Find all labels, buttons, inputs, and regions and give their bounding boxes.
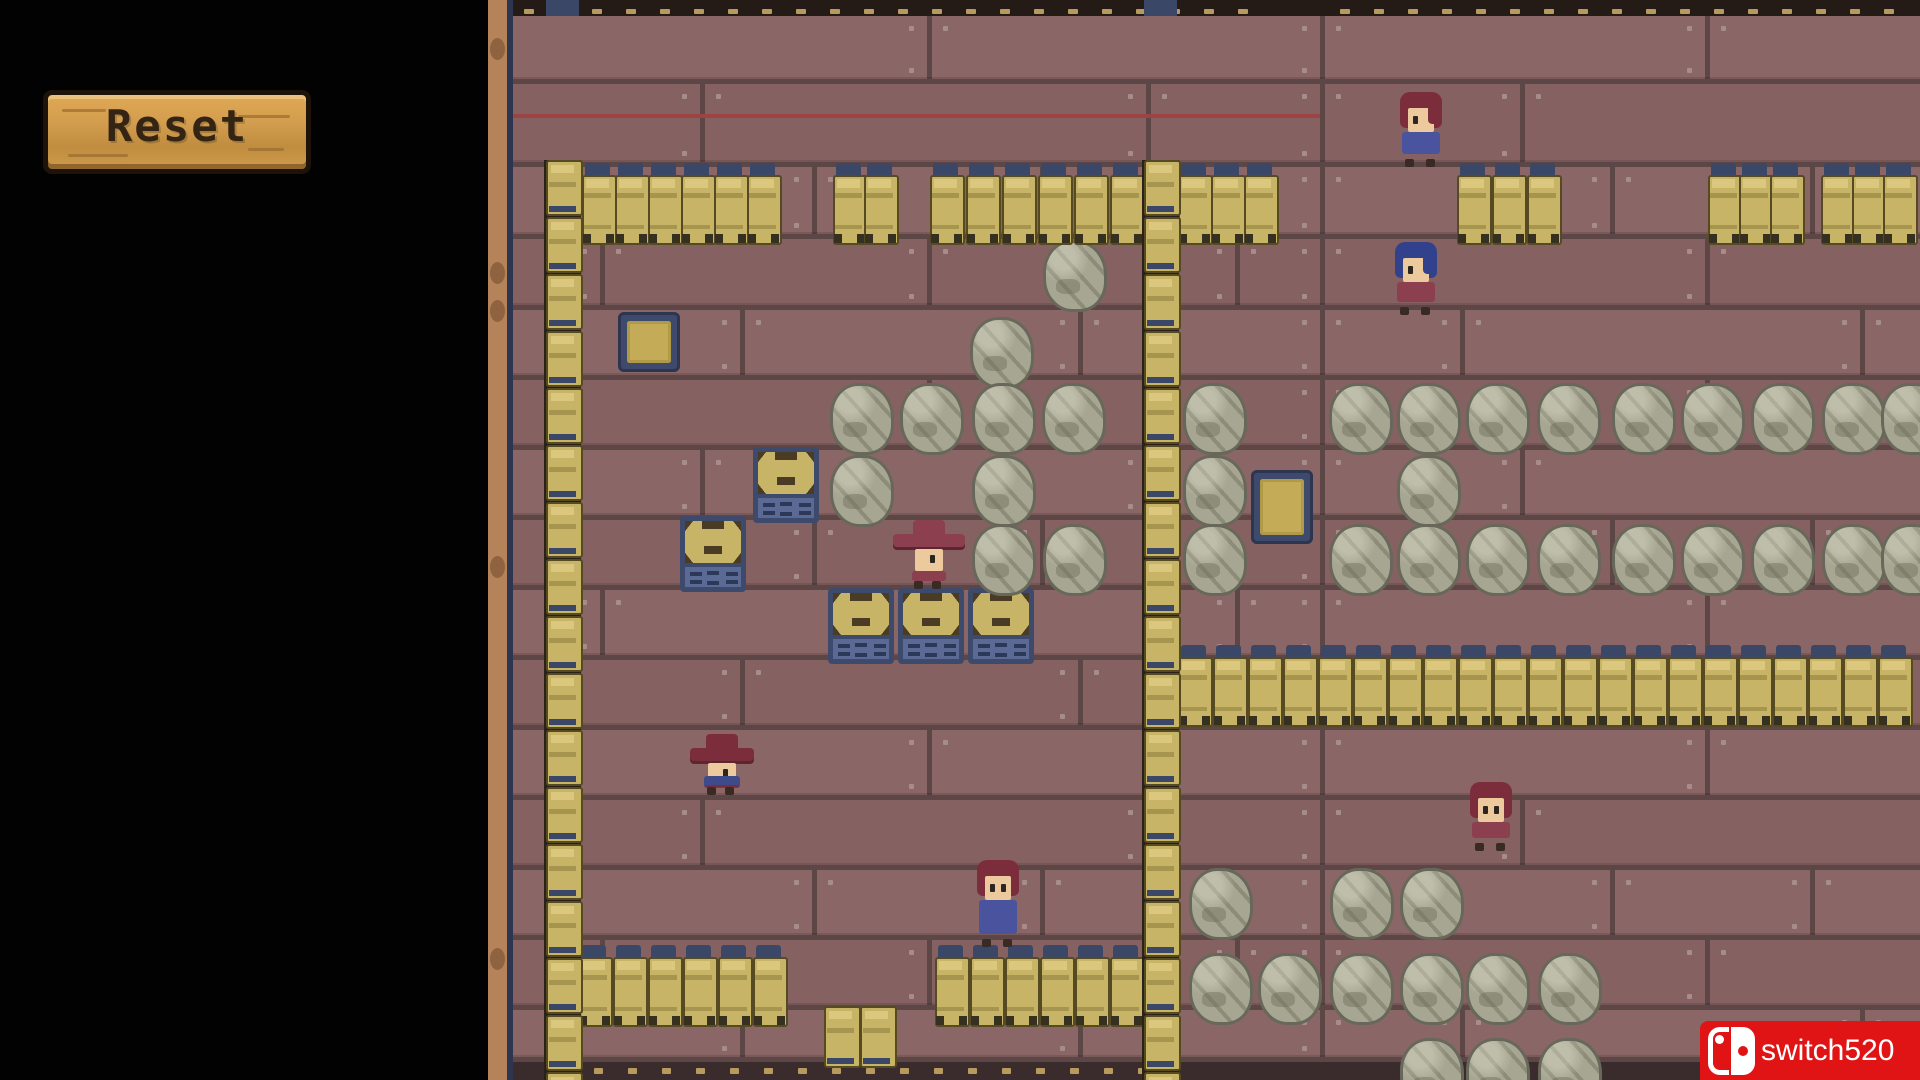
nail bbox=[1060, 1020, 1065, 1025]
nail bbox=[909, 994, 914, 999]
plank-seam bbox=[812, 870, 817, 940]
nail bbox=[1842, 364, 1847, 369]
nail bbox=[1687, 390, 1692, 395]
top-strip-dash bbox=[1578, 9, 1588, 14]
top-strip-dash bbox=[1374, 9, 1384, 14]
nail bbox=[1792, 924, 1797, 929]
nail bbox=[1476, 670, 1481, 675]
left-wall-beam bbox=[488, 0, 507, 1080]
nail bbox=[1217, 294, 1222, 299]
nail bbox=[1687, 26, 1692, 31]
nail bbox=[1336, 1020, 1341, 1025]
nail bbox=[943, 26, 948, 31]
nail bbox=[909, 68, 914, 73]
plank-seam bbox=[1078, 1010, 1083, 1062]
nail bbox=[1302, 644, 1307, 649]
top-strip-dash bbox=[524, 9, 534, 14]
plank-seam bbox=[740, 310, 745, 380]
nail bbox=[1162, 460, 1167, 465]
nail bbox=[1302, 460, 1307, 465]
plank-seam bbox=[1705, 239, 1710, 310]
nail bbox=[1302, 223, 1307, 228]
reset-button[interactable]: Reset bbox=[43, 90, 311, 174]
nail bbox=[1162, 810, 1167, 815]
nail bbox=[682, 151, 687, 156]
nail bbox=[682, 94, 687, 99]
nail bbox=[1442, 714, 1447, 719]
nail bbox=[582, 294, 587, 299]
plank-seam bbox=[1040, 167, 1045, 239]
plank-seam bbox=[1146, 450, 1151, 520]
plank-seam bbox=[927, 940, 932, 1010]
plank bbox=[513, 800, 1920, 870]
bottom-strip-dash bbox=[594, 1068, 603, 1074]
nail bbox=[756, 1020, 761, 1025]
top-strip-dash bbox=[1748, 9, 1758, 14]
nail bbox=[582, 994, 587, 999]
nail bbox=[1094, 320, 1099, 325]
nail bbox=[722, 714, 727, 719]
bottom-strip-dash bbox=[1070, 1068, 1079, 1074]
nail bbox=[828, 880, 833, 885]
plank-seam bbox=[812, 520, 817, 590]
bottom-strip-dash bbox=[628, 1068, 637, 1074]
nail bbox=[1721, 950, 1726, 955]
nail bbox=[1792, 177, 1797, 182]
bottom-strip-dash bbox=[696, 1068, 705, 1074]
plank bbox=[513, 167, 1920, 239]
nail bbox=[1302, 600, 1307, 605]
plank-seam bbox=[1520, 800, 1525, 870]
nail bbox=[1336, 249, 1341, 254]
top-strip-dash bbox=[1612, 9, 1622, 14]
nail bbox=[1251, 600, 1256, 605]
nail bbox=[1022, 530, 1027, 535]
nail bbox=[1336, 530, 1341, 535]
nail bbox=[1217, 950, 1222, 955]
nail bbox=[943, 600, 948, 605]
nail bbox=[1842, 670, 1847, 675]
top-strip-dash bbox=[660, 9, 670, 14]
top-strip-dash bbox=[1850, 9, 1860, 14]
plank-seam bbox=[927, 239, 932, 310]
nail bbox=[1302, 94, 1307, 99]
plank-seam bbox=[1320, 800, 1325, 870]
nail bbox=[582, 600, 587, 605]
top-strip-dash bbox=[1782, 9, 1792, 14]
nail bbox=[1128, 460, 1133, 465]
nail bbox=[1217, 994, 1222, 999]
nail bbox=[1022, 223, 1027, 228]
nail bbox=[1302, 1046, 1307, 1051]
nail bbox=[1792, 574, 1797, 579]
nail bbox=[1302, 994, 1307, 999]
plank-seam bbox=[1610, 167, 1615, 239]
nail bbox=[1336, 26, 1341, 31]
plank-seam bbox=[1705, 590, 1710, 660]
plank-seam bbox=[927, 380, 932, 450]
nail bbox=[1442, 1046, 1447, 1051]
nail bbox=[1302, 670, 1307, 675]
nail bbox=[909, 26, 914, 31]
plank-seam bbox=[1320, 380, 1325, 450]
switch-logo-icon bbox=[1708, 1027, 1729, 1075]
nail bbox=[1592, 924, 1597, 929]
nail bbox=[1826, 880, 1831, 885]
bottom-strip-dash bbox=[900, 1068, 909, 1074]
plank bbox=[513, 870, 1920, 940]
nail bbox=[1302, 810, 1307, 815]
plank-seam bbox=[1320, 310, 1325, 380]
plank-seam bbox=[927, 16, 932, 84]
nail bbox=[943, 740, 948, 745]
plank-seam bbox=[1460, 1010, 1465, 1062]
bottom-strip-dash bbox=[1104, 1068, 1113, 1074]
nail bbox=[1060, 320, 1065, 325]
top-strip-dash bbox=[1544, 9, 1554, 14]
plank-seam bbox=[1320, 84, 1325, 167]
switch-logo-icon bbox=[1731, 1027, 1755, 1075]
nail bbox=[1217, 600, 1222, 605]
plank-seam bbox=[1078, 310, 1083, 380]
nail bbox=[1592, 880, 1597, 885]
nail bbox=[616, 950, 621, 955]
nail bbox=[1302, 151, 1307, 156]
top-strip-dash bbox=[694, 9, 704, 14]
nail bbox=[1687, 68, 1692, 73]
nail bbox=[1336, 810, 1341, 815]
bottom-strip-dash bbox=[1138, 1068, 1147, 1074]
nail bbox=[582, 249, 587, 254]
nail bbox=[682, 460, 687, 465]
nail bbox=[1128, 810, 1133, 815]
plank-seam bbox=[1520, 450, 1525, 520]
nail bbox=[1721, 600, 1726, 605]
plank-seam bbox=[1860, 660, 1865, 730]
nail bbox=[1626, 880, 1631, 885]
nail bbox=[1536, 460, 1541, 465]
nail bbox=[828, 530, 833, 535]
nail bbox=[1687, 950, 1692, 955]
nail bbox=[1826, 177, 1831, 182]
nail bbox=[1687, 249, 1692, 254]
nail bbox=[1476, 1020, 1481, 1025]
plank-seam bbox=[1040, 870, 1045, 940]
game-area[interactable] bbox=[513, 0, 1920, 1080]
nail bbox=[794, 530, 799, 535]
nail bbox=[1687, 740, 1692, 745]
nail bbox=[1336, 94, 1341, 99]
nail bbox=[1626, 530, 1631, 535]
nail bbox=[1060, 670, 1065, 675]
nail bbox=[1302, 924, 1307, 929]
plank-seam bbox=[740, 1010, 745, 1062]
plank-seam bbox=[1320, 870, 1325, 940]
nail bbox=[1592, 177, 1597, 182]
nail bbox=[909, 249, 914, 254]
plank-seam bbox=[1320, 660, 1325, 730]
left-panel: Reset bbox=[0, 0, 488, 1080]
plank bbox=[513, 84, 1920, 167]
top-wall-strip bbox=[513, 0, 1920, 16]
nail bbox=[1721, 26, 1726, 31]
plank-seam bbox=[1320, 590, 1325, 660]
nail bbox=[1502, 94, 1507, 99]
nail bbox=[1060, 364, 1065, 369]
nail bbox=[1336, 320, 1341, 325]
top-strip-dash bbox=[1816, 9, 1826, 14]
nail bbox=[1217, 249, 1222, 254]
nail bbox=[1687, 294, 1692, 299]
plank-seam bbox=[740, 660, 745, 730]
plank-seam bbox=[700, 800, 705, 870]
plank-seam bbox=[1040, 520, 1045, 590]
nail bbox=[1476, 320, 1481, 325]
bottom-strip-dash bbox=[968, 1068, 977, 1074]
nail bbox=[1022, 574, 1027, 579]
nail bbox=[716, 460, 721, 465]
nail bbox=[722, 1046, 727, 1051]
plank-seam bbox=[1810, 167, 1815, 239]
nail bbox=[1792, 880, 1797, 885]
bottom-strip-dash bbox=[764, 1068, 773, 1074]
nail bbox=[1302, 740, 1307, 745]
nail bbox=[1336, 740, 1341, 745]
nail bbox=[1128, 504, 1133, 509]
nail bbox=[1022, 177, 1027, 182]
top-strip-dash bbox=[1510, 9, 1520, 14]
nail bbox=[1302, 530, 1307, 535]
plank-seam bbox=[1460, 660, 1465, 730]
nail bbox=[1302, 1020, 1307, 1025]
top-strip-dash bbox=[898, 9, 908, 14]
nail bbox=[909, 390, 914, 395]
nail bbox=[1442, 320, 1447, 325]
plank-seam bbox=[600, 940, 605, 1010]
plank-seam bbox=[1320, 730, 1325, 800]
nail bbox=[1302, 390, 1307, 395]
nail bbox=[1022, 880, 1027, 885]
plank bbox=[513, 520, 1920, 590]
nail bbox=[794, 880, 799, 885]
nail bbox=[1056, 177, 1061, 182]
nail bbox=[1876, 320, 1881, 325]
nail bbox=[722, 1020, 727, 1025]
column-cap bbox=[1144, 0, 1177, 16]
plank-seam bbox=[1320, 450, 1325, 520]
nail bbox=[1502, 460, 1507, 465]
nail bbox=[1687, 784, 1692, 789]
bottom-strip-dash bbox=[560, 1068, 569, 1074]
nail bbox=[1792, 223, 1797, 228]
nail bbox=[1592, 574, 1597, 579]
bottom-strip-dash bbox=[730, 1068, 739, 1074]
nail bbox=[616, 249, 621, 254]
nail bbox=[909, 294, 914, 299]
plank-seam bbox=[1705, 380, 1710, 450]
nail bbox=[1302, 320, 1307, 325]
top-strip-dash bbox=[1102, 9, 1112, 14]
plank-seam bbox=[1320, 167, 1325, 239]
nail bbox=[1442, 670, 1447, 675]
top-strip-dash bbox=[1680, 9, 1690, 14]
top-strip-dash bbox=[1646, 9, 1656, 14]
top-strip-dash bbox=[626, 9, 636, 14]
nail bbox=[722, 320, 727, 325]
nail bbox=[1056, 530, 1061, 535]
top-strip-dash bbox=[1068, 9, 1078, 14]
nail bbox=[1302, 26, 1307, 31]
nail bbox=[794, 574, 799, 579]
reset-button-label: Reset bbox=[48, 101, 306, 152]
nail bbox=[943, 390, 948, 395]
top-strip-dash bbox=[966, 9, 976, 14]
top-strip-dash bbox=[1714, 9, 1724, 14]
plank-seam bbox=[1320, 940, 1325, 1010]
nail bbox=[1842, 714, 1847, 719]
nail bbox=[1687, 994, 1692, 999]
plank-seam bbox=[1146, 84, 1151, 167]
nail bbox=[1792, 530, 1797, 535]
plank-seam bbox=[1320, 16, 1325, 84]
nail bbox=[1251, 950, 1256, 955]
nail bbox=[722, 670, 727, 675]
nail bbox=[716, 94, 721, 99]
bottom-strip-dash bbox=[798, 1068, 807, 1074]
nail bbox=[1592, 223, 1597, 228]
plank-seam bbox=[812, 167, 817, 239]
bottom-strip-dash bbox=[934, 1068, 943, 1074]
nail bbox=[1302, 68, 1307, 73]
plank-seam bbox=[1235, 940, 1240, 1010]
top-strip-dash bbox=[932, 9, 942, 14]
nail bbox=[909, 740, 914, 745]
nail bbox=[1592, 530, 1597, 535]
plank-seam bbox=[927, 590, 932, 660]
nail bbox=[1128, 854, 1133, 859]
plank bbox=[513, 450, 1920, 520]
nail bbox=[616, 600, 621, 605]
nail bbox=[909, 950, 914, 955]
nail bbox=[1502, 854, 1507, 859]
nail bbox=[1302, 714, 1307, 719]
nail bbox=[1302, 950, 1307, 955]
plank-seam bbox=[1320, 239, 1325, 310]
nail bbox=[1502, 810, 1507, 815]
nail bbox=[1687, 434, 1692, 439]
plank-seam bbox=[700, 450, 705, 520]
nail bbox=[1302, 177, 1307, 182]
nail bbox=[1842, 320, 1847, 325]
nail bbox=[909, 644, 914, 649]
nail bbox=[1302, 504, 1307, 509]
plank-seam bbox=[1078, 660, 1083, 730]
nail bbox=[716, 810, 721, 815]
nail bbox=[1721, 249, 1726, 254]
top-strip-dash bbox=[1204, 9, 1214, 14]
nail bbox=[1336, 177, 1341, 182]
nail bbox=[1094, 1020, 1099, 1025]
plank-seam bbox=[1705, 16, 1710, 84]
watermark: switch520 bbox=[1700, 1021, 1920, 1080]
nail bbox=[1128, 94, 1133, 99]
plank-seam bbox=[1460, 310, 1465, 380]
plank-seam bbox=[927, 730, 932, 800]
plank-seam bbox=[1860, 310, 1865, 380]
top-strip-dash bbox=[1340, 9, 1350, 14]
nail bbox=[1251, 249, 1256, 254]
watermark-text: switch520 bbox=[1761, 1034, 1894, 1068]
top-strip-dash bbox=[1034, 9, 1044, 14]
top-strip-dash bbox=[864, 9, 874, 14]
nail bbox=[1687, 600, 1692, 605]
plank-seam bbox=[1146, 800, 1151, 870]
plank-seam bbox=[1520, 84, 1525, 167]
bottom-strip-dash bbox=[662, 1068, 671, 1074]
nail bbox=[943, 249, 948, 254]
nail bbox=[828, 177, 833, 182]
nail bbox=[1336, 950, 1341, 955]
bottom-strip-dash bbox=[1002, 1068, 1011, 1074]
nail bbox=[909, 600, 914, 605]
bottom-strip-dash bbox=[1036, 1068, 1045, 1074]
bottom-strip-dash bbox=[832, 1068, 841, 1074]
nail bbox=[1687, 644, 1692, 649]
nail bbox=[1060, 714, 1065, 719]
nail bbox=[943, 950, 948, 955]
nail bbox=[756, 670, 761, 675]
plank-seam bbox=[1810, 520, 1815, 590]
wood-grain bbox=[68, 154, 128, 157]
nail bbox=[682, 854, 687, 859]
nail bbox=[1302, 294, 1307, 299]
nail bbox=[794, 223, 799, 228]
nail bbox=[1302, 249, 1307, 254]
nail bbox=[1060, 1046, 1065, 1051]
nail bbox=[1217, 644, 1222, 649]
nail bbox=[682, 810, 687, 815]
nail bbox=[1022, 924, 1027, 929]
column-cap bbox=[546, 0, 579, 16]
plank-seam bbox=[600, 239, 605, 310]
top-strip-dash bbox=[592, 9, 602, 14]
top-strip-dash bbox=[1238, 9, 1248, 14]
nail bbox=[1336, 460, 1341, 465]
nail bbox=[909, 434, 914, 439]
nail bbox=[722, 364, 727, 369]
nail bbox=[1536, 94, 1541, 99]
plank-seam bbox=[1235, 590, 1240, 660]
nail bbox=[1876, 670, 1881, 675]
nail bbox=[1302, 880, 1307, 885]
nail bbox=[1302, 784, 1307, 789]
top-strip-dash bbox=[1476, 9, 1486, 14]
nail bbox=[1302, 434, 1307, 439]
nail bbox=[1536, 810, 1541, 815]
nail bbox=[1721, 390, 1726, 395]
nail bbox=[1336, 390, 1341, 395]
nail bbox=[1721, 740, 1726, 745]
nail bbox=[1302, 364, 1307, 369]
plank-seam bbox=[1320, 1010, 1325, 1062]
nail bbox=[1094, 670, 1099, 675]
plank-seam bbox=[1235, 239, 1240, 310]
plank-seam bbox=[1610, 870, 1615, 940]
nail bbox=[1336, 600, 1341, 605]
plank-seam bbox=[1705, 940, 1710, 1010]
nail bbox=[1336, 880, 1341, 885]
nail bbox=[1502, 504, 1507, 509]
